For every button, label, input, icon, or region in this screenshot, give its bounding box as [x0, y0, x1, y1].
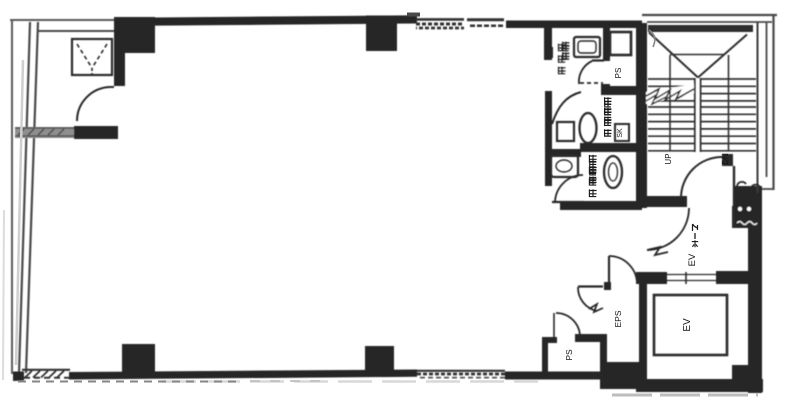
svg-text:PS: PS: [614, 68, 623, 79]
svg-text:DN: DN: [721, 153, 730, 165]
svg-text:EV: EV: [682, 318, 693, 332]
svg-text:EV: EV: [687, 253, 698, 266]
svg-text:UP: UP: [664, 153, 673, 164]
svg-text:SK: SK: [617, 128, 624, 138]
svg-text:PS: PS: [564, 349, 574, 361]
svg-text:EPS: EPS: [613, 310, 623, 327]
